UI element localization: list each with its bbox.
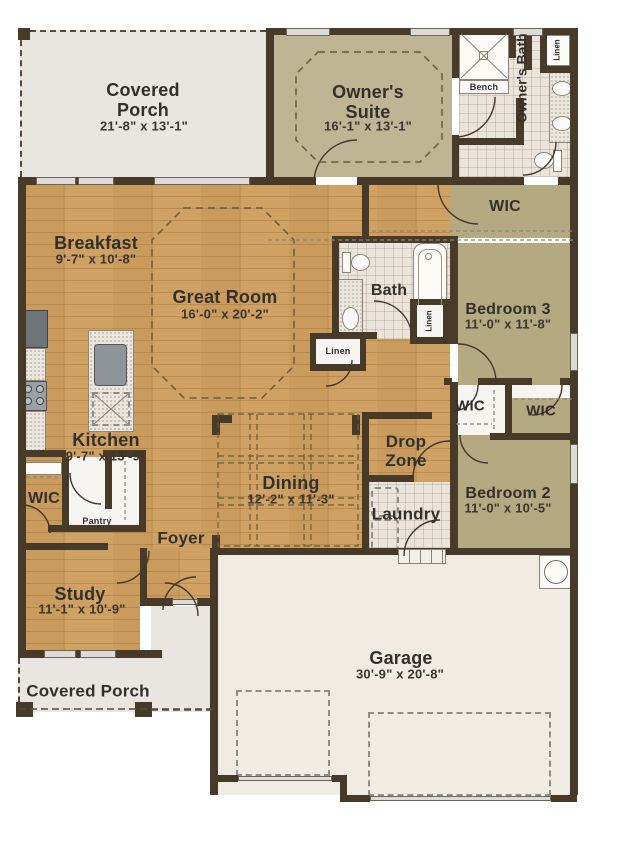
wall — [362, 185, 369, 238]
dining-label: Dining — [262, 473, 319, 493]
window — [238, 776, 332, 781]
garage-door-single — [236, 690, 330, 776]
wall — [266, 177, 316, 185]
study-dims: 11'-1" x 10'-9" — [38, 603, 125, 618]
wall — [362, 475, 414, 482]
owners-sink-1 — [552, 81, 572, 96]
stove-burner — [36, 397, 44, 405]
great-room-label: Great Room — [172, 287, 277, 307]
wall — [105, 457, 112, 509]
pantry-label: Pantry — [82, 516, 111, 526]
breakfast-dims: 9'-7" x 10'-8" — [56, 253, 137, 268]
wall — [551, 795, 577, 802]
wall — [210, 548, 578, 555]
window — [570, 333, 578, 371]
stove-burner — [36, 385, 44, 393]
owners-sink-2 — [552, 116, 572, 131]
wall — [332, 332, 377, 339]
owners-toilet-bowl — [534, 152, 554, 169]
garage-label: Garage — [369, 648, 432, 668]
wall — [210, 548, 218, 795]
front-stoop-floor — [151, 606, 210, 712]
bedroom-2-dims: 11'-0" x 10'-5" — [464, 502, 551, 517]
wall — [452, 28, 459, 78]
linen-bedroom-hall-label: Linen — [426, 310, 435, 331]
foyer-label: Foyer — [157, 528, 204, 547]
pantry-floor — [66, 457, 106, 509]
wall — [332, 236, 339, 339]
owners-suite-label: Owner's Suite — [325, 82, 411, 122]
wall — [570, 548, 578, 795]
kitchen-sink — [94, 344, 127, 386]
linen-hall-label: Linen — [326, 346, 351, 356]
great-room-dims: 16'-0" x 20'-2" — [181, 308, 269, 323]
wall — [458, 177, 524, 185]
wall — [450, 236, 458, 344]
drop-zone-label: Drop Zone — [375, 432, 437, 470]
wall — [332, 236, 457, 243]
wall — [452, 138, 524, 145]
wall — [478, 378, 532, 385]
wall — [18, 450, 66, 457]
bedroom-3-dims: 11'-0" x 11'-8" — [465, 318, 552, 333]
window — [286, 28, 330, 36]
toilet-bowl — [351, 254, 370, 271]
laundry-label: Laundry — [372, 504, 440, 523]
front-door-threshold — [172, 599, 198, 605]
window — [80, 650, 116, 658]
wall — [352, 415, 360, 435]
wall — [62, 457, 69, 527]
toilet-tank — [342, 252, 351, 273]
wall — [18, 543, 108, 550]
wall — [505, 385, 512, 440]
window — [570, 444, 578, 484]
bath-label: Bath — [371, 282, 407, 300]
water-heater-tank — [544, 560, 568, 584]
wall — [540, 66, 577, 73]
dining-dims: 12'-2" x 11'-3" — [247, 493, 334, 508]
covered-porch-top-dims: 21'-8" x 13'-1" — [100, 120, 188, 135]
wic-bedroom-2-label: WIC — [455, 399, 485, 416]
wic-bedroom-3-label: WIC — [526, 404, 556, 421]
wall — [357, 177, 458, 185]
porch-post — [18, 28, 30, 40]
shower-bench-label: Bench — [470, 82, 499, 92]
wall — [450, 433, 458, 440]
wall — [560, 378, 577, 385]
window — [36, 177, 76, 185]
foyer-floor — [140, 548, 210, 600]
wall — [444, 378, 452, 385]
linen-owners-bath-label: Linen — [554, 39, 563, 60]
wall — [18, 177, 26, 658]
shower-drain — [479, 51, 488, 60]
kitchen-dims: 9'-7" x 13'-9" — [66, 450, 147, 465]
kitchen-wic-shelf — [24, 462, 62, 475]
owners-toilet-tank — [553, 150, 562, 172]
wall — [212, 535, 220, 555]
floor-plan: Covered Porch 21'-8" x 13'-1" Owner's Su… — [0, 0, 640, 858]
coat-closet-floor — [112, 457, 139, 509]
garage-dims: 30'-9" x 20'-8" — [356, 668, 444, 683]
porch-post — [135, 702, 152, 717]
bath-sink — [342, 307, 359, 330]
owners-wic-label: WIC — [489, 198, 521, 216]
wall — [340, 795, 370, 802]
kitchen-label: Kitchen — [72, 430, 139, 450]
bathtub-drain — [425, 253, 432, 260]
dryer — [371, 519, 399, 551]
window — [78, 177, 114, 185]
window — [154, 177, 250, 185]
wall — [490, 433, 577, 440]
covered-porch-top-label: Covered Porch — [87, 80, 199, 120]
kitchen-wic-label: WIC — [28, 490, 60, 508]
dishwasher — [92, 392, 130, 426]
wall — [558, 177, 577, 185]
wall — [212, 415, 232, 423]
wall — [197, 598, 213, 606]
wall — [450, 440, 458, 550]
wall — [362, 412, 432, 419]
stairs — [398, 549, 446, 564]
wall — [48, 525, 146, 532]
wall — [140, 598, 173, 606]
wall — [266, 28, 274, 185]
window — [370, 796, 551, 801]
owners-bath-label: Owner's Bath — [514, 57, 529, 123]
wall — [210, 775, 238, 782]
owners-suite-dims: 16'-1" x 13'-1" — [324, 120, 412, 135]
wall — [140, 548, 147, 605]
covered-porch-bottom-label: Covered Porch — [26, 681, 150, 700]
garage-door-double — [368, 712, 551, 796]
window — [44, 650, 76, 658]
porch-post — [16, 702, 33, 717]
breakfast-label: Breakfast — [54, 233, 138, 253]
window — [410, 28, 450, 36]
wic-bedroom3-shelf — [512, 385, 575, 398]
